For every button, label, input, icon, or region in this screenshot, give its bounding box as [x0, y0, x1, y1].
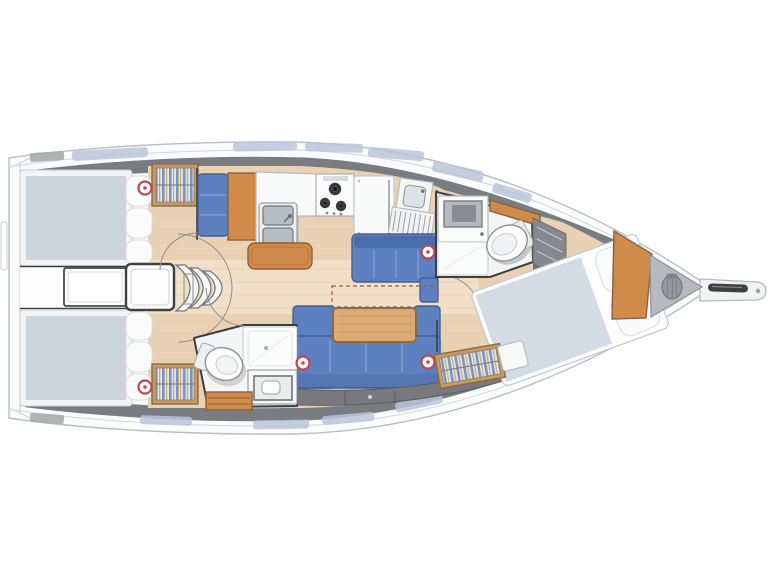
aft-bed-port-duvet — [26, 176, 126, 260]
forward-head-vanity — [438, 196, 488, 275]
aft-cabin-port — [20, 170, 152, 266]
aft-bed-stbd-duvet — [26, 316, 126, 400]
companionway-hatch — [126, 264, 174, 310]
faucet — [480, 232, 484, 236]
swim-platform — [1, 222, 7, 270]
boat-floorplan — [0, 0, 768, 576]
vent-marker — [139, 182, 152, 195]
drain — [264, 346, 268, 350]
vent-marker — [422, 246, 435, 259]
aft-bed-port-pillow — [126, 208, 152, 238]
engine-box — [64, 268, 126, 306]
fridge — [354, 176, 394, 238]
bowsprit — [700, 279, 766, 301]
floorplan-canvas — [0, 0, 768, 576]
shower-pan — [243, 327, 297, 371]
hanging-locker-aft-starboard — [152, 364, 198, 404]
vent-marker — [297, 357, 310, 370]
anchor-roller — [708, 283, 748, 292]
aft-bed-stbd-pillow — [126, 312, 152, 340]
bow-wood-panel — [612, 231, 652, 319]
chart-table — [228, 173, 257, 240]
aft-head-drawers — [206, 392, 252, 410]
nav-seat — [198, 174, 228, 236]
bowsprit-fitting — [756, 289, 760, 293]
stove — [316, 174, 354, 216]
hanging-locker-aft-port — [152, 164, 198, 206]
aft-cabin-starboard — [20, 310, 152, 406]
forward-bench — [497, 340, 529, 372]
locker-handle — [368, 395, 372, 399]
vent-marker — [139, 381, 152, 394]
salon-table — [333, 308, 416, 342]
vent-marker — [422, 356, 435, 369]
aft-bed-port-pillow — [126, 240, 152, 265]
cutting-board — [248, 243, 312, 269]
aft-head-vanity — [248, 370, 297, 404]
aft-bed-stbd-pillow — [126, 342, 152, 372]
